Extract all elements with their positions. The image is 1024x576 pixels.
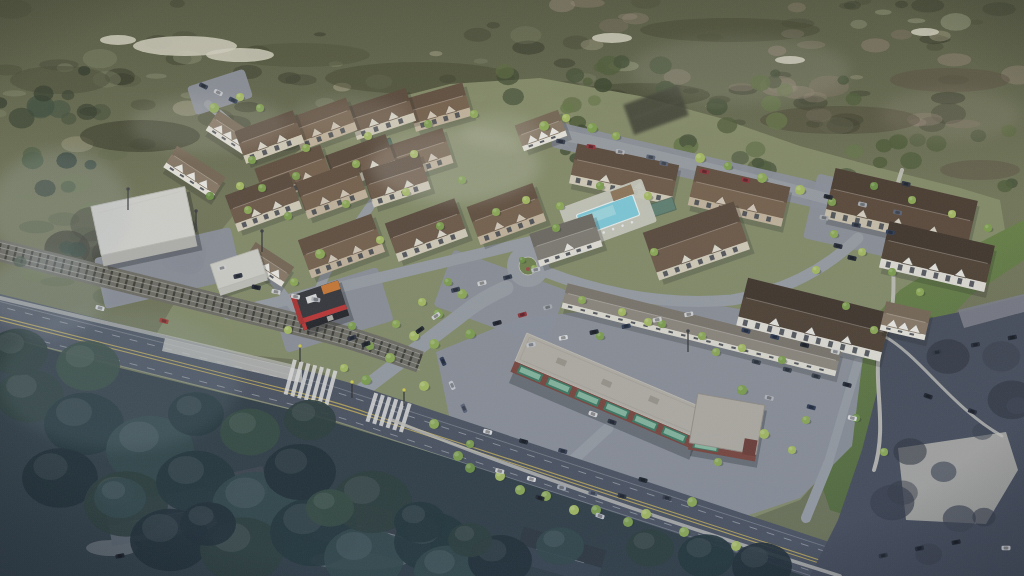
vignette bbox=[0, 0, 1024, 576]
aerial-site-rendering-svg bbox=[0, 0, 1024, 576]
aerial-rendering bbox=[0, 0, 1024, 576]
fx-layer bbox=[0, 0, 1024, 576]
